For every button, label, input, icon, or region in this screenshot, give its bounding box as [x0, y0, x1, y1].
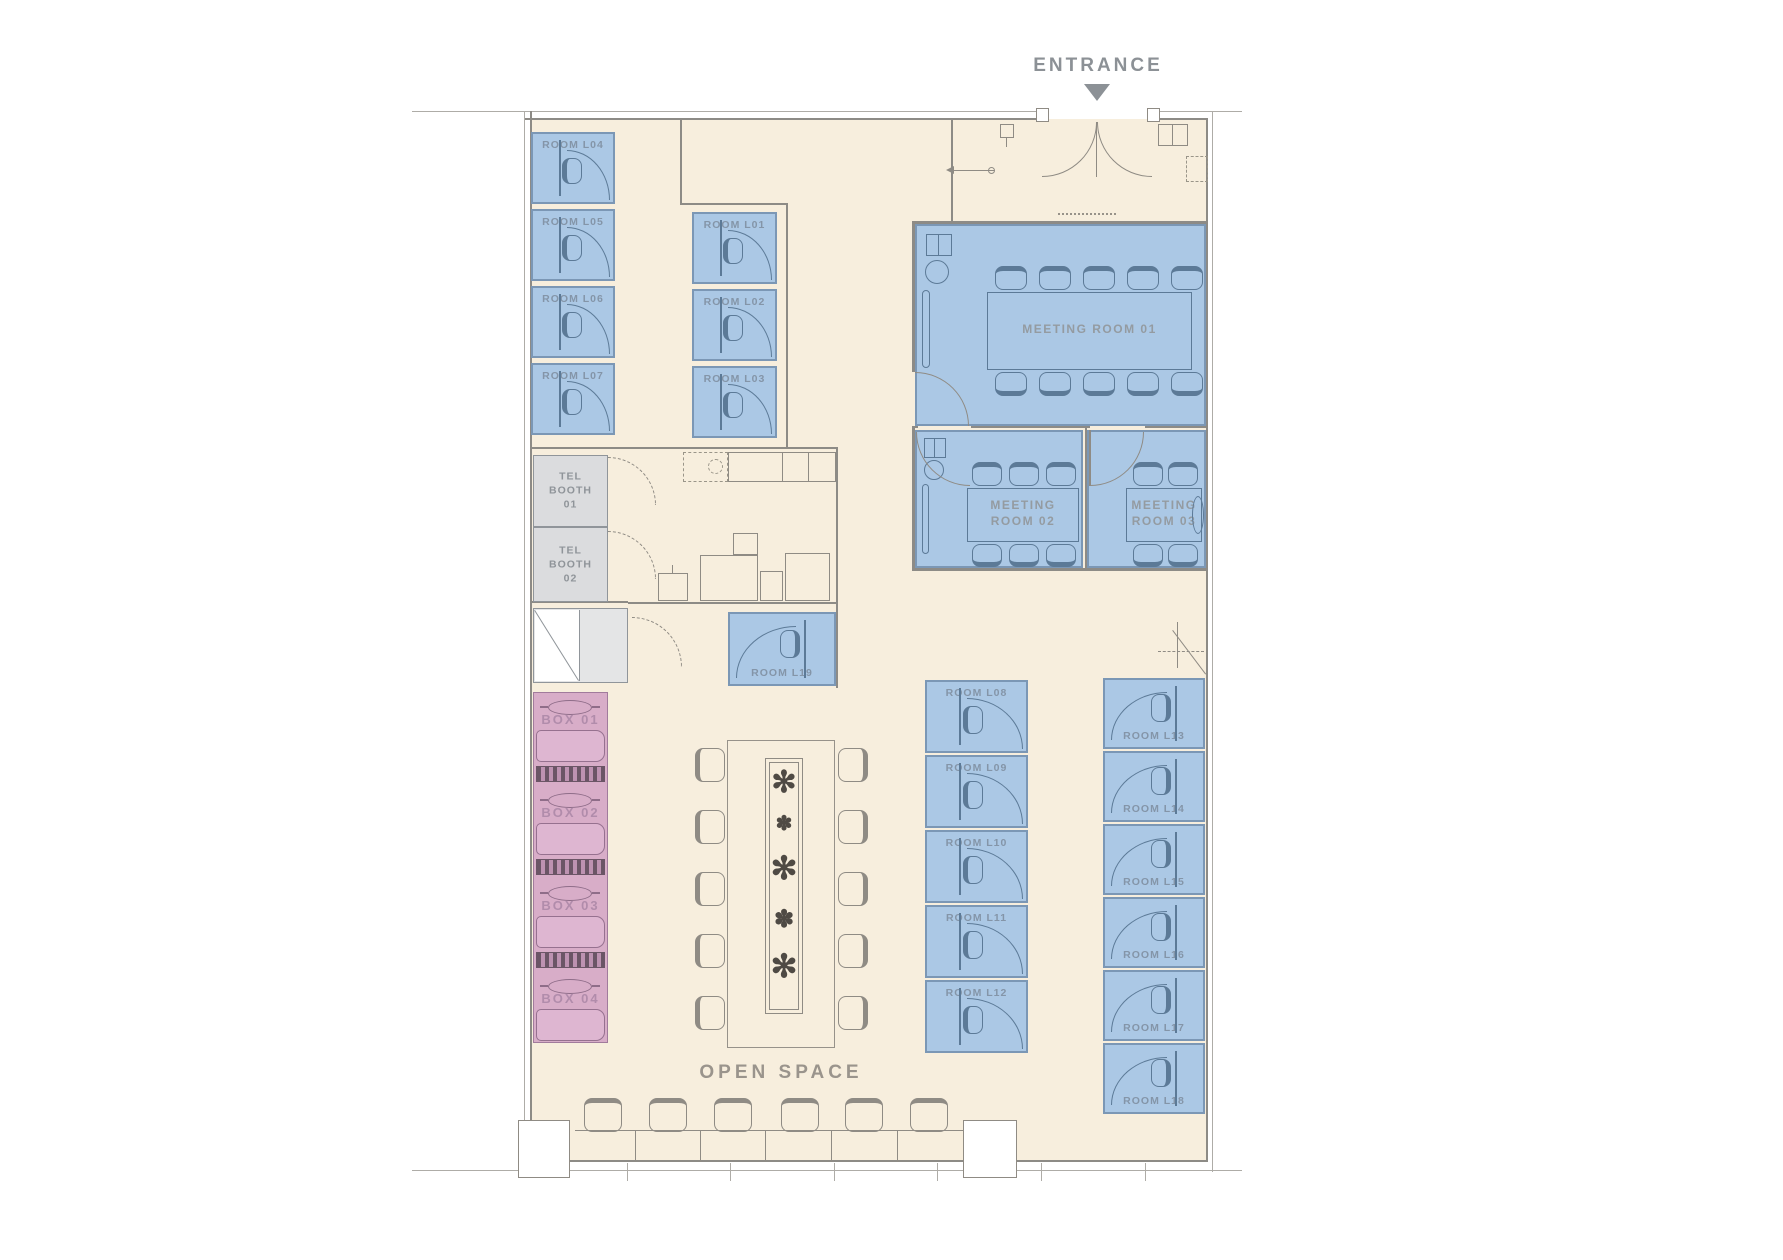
- bottom-counter: [575, 1130, 963, 1162]
- box-label: BOX 03: [533, 898, 608, 913]
- meeting-room-label: MEETING ROOM 02: [967, 498, 1079, 529]
- open-space-label: OPEN SPACE: [656, 1062, 906, 1084]
- chair-icon: [1083, 372, 1115, 396]
- box-label: BOX 02: [533, 805, 608, 820]
- tel-booth-label: TEL BOOTH 01: [534, 470, 607, 513]
- door-arc-icon: [1111, 911, 1167, 959]
- table-wing: [540, 706, 548, 708]
- room-l06: ROOM L06: [531, 286, 615, 358]
- wall-tick: [937, 1163, 938, 1181]
- chair-icon: [995, 372, 1027, 396]
- bench: [536, 916, 605, 948]
- chair-icon: [1009, 462, 1039, 486]
- door-arc-icon: [728, 307, 772, 357]
- equipment-tick: [1006, 138, 1007, 147]
- door-arc-icon: [728, 384, 772, 434]
- room-l02: ROOM L02: [692, 289, 777, 361]
- room-l16: ROOM L16: [1103, 897, 1205, 968]
- chair-icon: [838, 810, 868, 844]
- room-l11: ROOM L11: [925, 905, 1028, 978]
- plant-squiggle-icon: [1058, 213, 1116, 216]
- door-arc-icon: [967, 773, 1023, 824]
- door-arc-icon: [567, 227, 610, 277]
- desk: [733, 533, 758, 555]
- room-l07: ROOM L07: [531, 363, 615, 435]
- entrance-door-line: [1096, 122, 1097, 177]
- room-label: ROOM L08: [927, 687, 1026, 699]
- wall-tick: [730, 1163, 731, 1181]
- wall: [1150, 111, 1242, 112]
- chair-icon: [714, 1098, 752, 1132]
- pillar: [963, 1120, 1017, 1178]
- room-l01: ROOM L01: [692, 212, 777, 284]
- door-arc-icon: [967, 698, 1023, 749]
- room-l18: ROOM L18: [1103, 1043, 1205, 1114]
- door-arc-icon: [1111, 692, 1167, 740]
- room-l13: ROOM L13: [1103, 678, 1205, 749]
- table-wing: [540, 799, 548, 801]
- door-arc-icon: [736, 626, 796, 678]
- chair-icon: [584, 1098, 622, 1132]
- table-wing: [592, 892, 600, 894]
- chair-icon: [1127, 372, 1159, 396]
- chair-icon: [1171, 266, 1203, 290]
- bench: [536, 1009, 605, 1041]
- floor-plan: ENTRANCE MEETING ROOM 01: [0, 0, 1783, 1260]
- wall: [1206, 118, 1208, 1162]
- counter-divider: [635, 1130, 636, 1162]
- counter-divider: [831, 1130, 832, 1162]
- door-arc-icon: [967, 998, 1023, 1049]
- wall: [971, 426, 1090, 428]
- wall: [951, 119, 953, 222]
- bench: [536, 823, 605, 855]
- door-arc-icon: [728, 230, 772, 280]
- room-label: ROOM L06: [533, 293, 613, 305]
- table-wing: [592, 799, 600, 801]
- room-l10: ROOM L10: [925, 830, 1028, 903]
- chair-icon: [1171, 372, 1203, 396]
- chair-icon: [1133, 544, 1163, 567]
- chair-icon: [838, 934, 868, 968]
- sideboard-icon: [922, 290, 930, 368]
- plant-icon: ✽: [768, 814, 800, 834]
- chair-icon: [845, 1098, 883, 1132]
- table-wing: [540, 985, 548, 987]
- pillar: [518, 1120, 570, 1178]
- room-label: ROOM L09: [927, 762, 1026, 774]
- sink-circle-icon: [708, 459, 723, 474]
- counter-divider: [897, 1130, 898, 1162]
- meeting-room-label: MEETING ROOM 01: [987, 322, 1192, 338]
- display-icon: [1192, 496, 1204, 534]
- room-l04: ROOM L04: [531, 132, 615, 204]
- room-label: ROOM L02: [694, 296, 775, 308]
- structure-dashed-line: [1158, 651, 1204, 652]
- planter-icon: [536, 766, 605, 782]
- room-label: ROOM L11: [927, 912, 1026, 924]
- chair-icon: [1039, 372, 1071, 396]
- table-wing: [540, 892, 548, 894]
- plant-circle-icon: [925, 260, 949, 284]
- bench: [536, 730, 605, 762]
- counter-divider: [782, 453, 783, 481]
- room-label: ROOM L05: [533, 216, 613, 228]
- chair-icon: [995, 266, 1027, 290]
- desk: [658, 573, 688, 601]
- room-label: ROOM L04: [533, 139, 613, 151]
- entrance-pier: [1036, 108, 1049, 122]
- counter-divider: [808, 453, 809, 481]
- chair-icon: [695, 748, 725, 782]
- chair-icon: [838, 748, 868, 782]
- door-arc-icon: [967, 923, 1023, 974]
- wall: [680, 203, 788, 205]
- tel-booth-label: TEL BOOTH 02: [534, 543, 607, 586]
- wall: [836, 449, 838, 688]
- counter-divider: [700, 1130, 701, 1162]
- cabinet-divider: [1172, 125, 1173, 145]
- wall: [412, 111, 1046, 112]
- sideboard-icon: [922, 484, 929, 554]
- wall: [786, 205, 788, 449]
- door-arc-icon: [1111, 984, 1167, 1032]
- wall: [1212, 111, 1213, 1172]
- room-label: ROOM L07: [533, 370, 613, 382]
- planter-icon: [536, 859, 605, 875]
- door-arc-icon: [1111, 765, 1167, 813]
- chair-icon: [1168, 462, 1198, 486]
- room-l12: ROOM L12: [925, 980, 1028, 1053]
- tel-booth-02: TEL BOOTH 02: [533, 527, 608, 602]
- door-arc-icon: [967, 848, 1023, 899]
- door-arc-icon: [567, 381, 610, 431]
- chair-icon: [972, 544, 1002, 567]
- tel-booth-01: TEL BOOTH 01: [533, 455, 608, 527]
- table-wing: [592, 706, 600, 708]
- structure-line: [1177, 622, 1178, 668]
- chair-icon: [695, 810, 725, 844]
- desk: [700, 555, 758, 601]
- wall-tick: [1041, 1163, 1042, 1181]
- chair-icon: [1168, 544, 1198, 567]
- room-l19: ROOM L19: [728, 612, 836, 686]
- room-l03: ROOM L03: [692, 366, 777, 438]
- chair-icon: [781, 1098, 819, 1132]
- room-l05: ROOM L05: [531, 209, 615, 281]
- chair-icon: [910, 1098, 948, 1132]
- wall-tick: [1145, 1163, 1146, 1181]
- chair-icon: [1046, 462, 1076, 486]
- door-arc-icon: [1111, 1057, 1167, 1105]
- room-l09: ROOM L09: [925, 755, 1028, 828]
- room-label: ROOM L03: [694, 373, 775, 385]
- desk-tick: [672, 565, 673, 574]
- chair-icon: [838, 872, 868, 906]
- door-arc-icon: [567, 150, 610, 200]
- desk: [760, 571, 783, 601]
- wall: [1145, 426, 1208, 428]
- entrance-label: ENTRANCE: [1008, 55, 1188, 77]
- wall: [680, 119, 682, 203]
- chair-icon: [1133, 462, 1163, 486]
- chair-icon: [695, 934, 725, 968]
- room-l14: ROOM L14: [1103, 751, 1205, 822]
- chair-icon: [972, 462, 1002, 486]
- plant-icon: ✻: [768, 852, 800, 884]
- box-label: BOX 04: [533, 991, 608, 1006]
- wall: [1156, 118, 1208, 120]
- counter-divider: [765, 1130, 766, 1162]
- chair-icon: [695, 996, 725, 1030]
- chair-icon: [1083, 266, 1115, 290]
- closet-divider: [579, 610, 580, 681]
- box-label: BOX 01: [533, 712, 608, 727]
- room-l15: ROOM L15: [1103, 824, 1205, 895]
- room-l17: ROOM L17: [1103, 970, 1205, 1041]
- entrance-arrow-icon: [1084, 84, 1110, 101]
- planter-icon: [536, 952, 605, 968]
- table-wing: [592, 985, 600, 987]
- chair-icon: [1009, 544, 1039, 567]
- wall: [531, 447, 838, 449]
- chair-icon: [695, 872, 725, 906]
- chair-icon: [1039, 266, 1071, 290]
- plant-icon: ✻: [768, 950, 800, 982]
- entrance-pier: [1147, 108, 1160, 122]
- room-label: ROOM L10: [927, 837, 1026, 849]
- room-l08: ROOM L08: [925, 680, 1028, 753]
- chair-icon: [1046, 544, 1076, 567]
- plant-icon: ✻: [768, 768, 800, 798]
- room-label: ROOM L12: [927, 987, 1026, 999]
- chair-icon: [1127, 266, 1159, 290]
- equipment-icon: [1000, 124, 1014, 138]
- counter-line: [628, 602, 836, 604]
- annotation-circle-icon: [988, 167, 995, 174]
- wall: [524, 111, 525, 1172]
- chair-icon: [649, 1098, 687, 1132]
- door-arc-icon: [1111, 838, 1167, 886]
- chair-icon: [838, 996, 868, 1030]
- door-leaf: [1089, 430, 1091, 486]
- wall-tick: [834, 1163, 835, 1181]
- wall: [912, 568, 1208, 571]
- door-arc-icon: [567, 304, 610, 354]
- dashed-fixture: [1186, 156, 1208, 182]
- wall: [524, 118, 1040, 120]
- wall-tick: [627, 1163, 628, 1181]
- wall: [912, 426, 918, 428]
- desk: [785, 553, 830, 601]
- plant-icon: ✽: [768, 908, 800, 932]
- room-label: ROOM L01: [694, 219, 775, 231]
